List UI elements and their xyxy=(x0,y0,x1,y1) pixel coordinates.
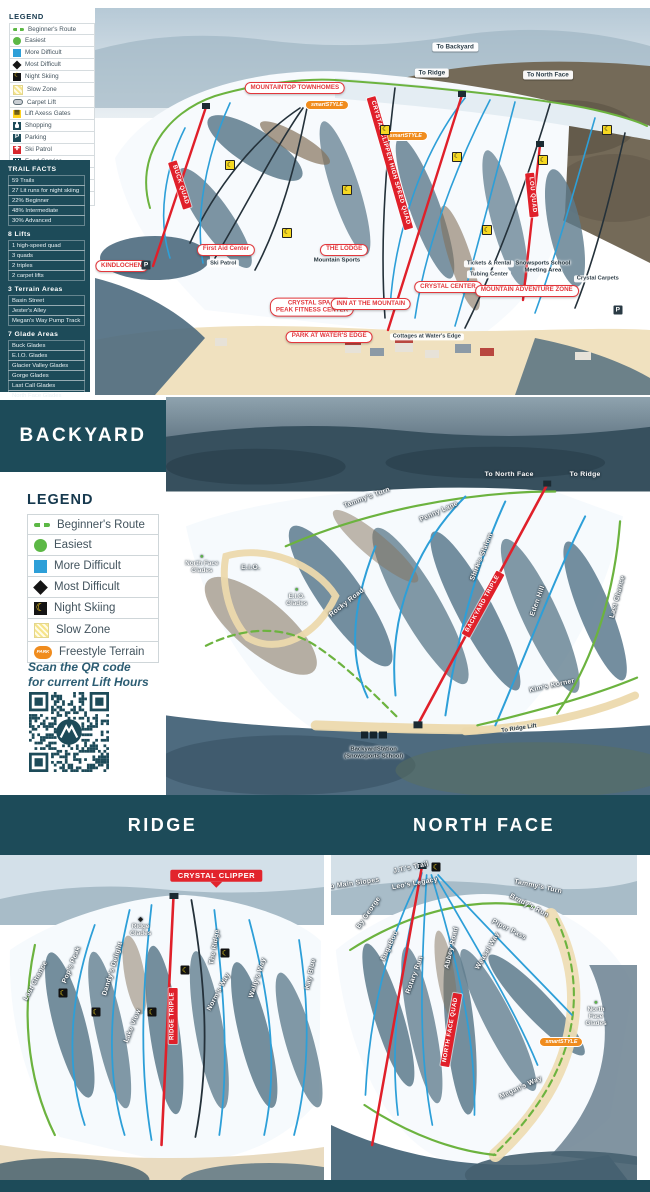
snowsports-school-meeting-area-label: Snowsports SchoolMeeting Area xyxy=(515,260,570,273)
qr-code-art xyxy=(29,692,109,772)
norm-s-way-label: Norm's Way xyxy=(206,972,232,1012)
main-trail-map: To BackyardTo RidgeTo North FaceMOUNTAIN… xyxy=(95,8,650,395)
most-difficult-icon xyxy=(12,60,21,69)
more-difficult-icon xyxy=(34,560,47,573)
shopping-icon xyxy=(13,122,21,130)
trail-map-poster: LEGEND Beginner's RouteEasiestMore Diffi… xyxy=(0,0,650,1192)
legend-item-label: Easiest xyxy=(54,539,92,551)
to-north-face-label: To North Face xyxy=(523,70,573,79)
most-difficult-icon xyxy=(33,580,48,595)
tubing-center-label: Tubing Center xyxy=(467,271,511,278)
inn-at-the-mountain-label: INN AT THE MOUNTAIN xyxy=(331,298,412,310)
tickets-rental-label: Tickets & Rental xyxy=(464,260,514,267)
night-skiing-icon: ☾ xyxy=(147,1008,156,1017)
section-band: RIDGE NORTH FACE xyxy=(0,795,650,855)
kay-blue-label: Kay Blue xyxy=(304,958,318,990)
mountain-adventure-zone-label: MOUNTAIN ADVENTURE ZONE xyxy=(475,285,579,297)
night-skiing-icon: ☾ xyxy=(34,602,47,615)
leo-s-legacy-label: Leo's Legacy xyxy=(392,876,439,892)
night-skiing-icon: ☾ xyxy=(380,125,390,135)
penny-lane-label: Penny Lane xyxy=(419,501,460,525)
legend-item-label: Most Difficult xyxy=(25,61,61,68)
last-chance-label: Last Chance xyxy=(22,960,49,1002)
by-george-label: By George xyxy=(355,896,383,931)
kindlochen-label: KINDLOCHEN xyxy=(95,260,148,272)
crystal-clipper-label: CRYSTAL CLIPPER xyxy=(171,870,262,883)
legend-item-label: Night Skiing xyxy=(25,73,59,80)
slow-zone-icon xyxy=(34,623,49,638)
legend-item-label: Shopping xyxy=(25,122,52,129)
j-t-s-trail-label: J.T.'s Trail xyxy=(393,861,430,876)
first-aid-center-label: First Aid Center xyxy=(197,244,255,256)
dandy-s-delight-label: Dandy's Delight xyxy=(101,941,125,996)
north-face-title: NORTH FACE xyxy=(331,795,637,855)
legend-item-label: Slow Zone xyxy=(56,624,110,636)
ridge-map: CRYSTAL CLIPPER◆RidgeGladesRIDGE TRIPLET… xyxy=(0,855,324,1192)
facts-item-2-carpet-lifts: 2 carpet lifts xyxy=(8,270,85,281)
crystal-center-label: CRYSTAL CENTER xyxy=(414,281,482,293)
legend-item-beginner-s-route: Beginner's Route xyxy=(28,515,158,535)
legend-item-night-skiing: ☾Night Skiing xyxy=(28,598,158,619)
qr-code xyxy=(29,692,109,772)
legend-item-label: More Difficult xyxy=(25,49,62,56)
north-face-quad-lift-label: NORTH FACE QUAD xyxy=(440,993,461,1067)
legend-item-slow-zone: Slow Zone xyxy=(28,619,158,642)
the-ridge-label: The Ridge xyxy=(209,929,223,965)
night-skiing-icon: ☾ xyxy=(13,73,21,81)
night-skiing-icon: ☾ xyxy=(538,155,548,165)
p-label: P xyxy=(142,260,151,269)
ski-patrol-icon: ✚ xyxy=(13,146,21,154)
backyardstation-snowsports-school-label: BackyardStation(Snowsports School) xyxy=(344,747,403,760)
crystal-spa-peak-fitness-center-label: CRYSTAL SPA &PEAK FITNESS CENTER xyxy=(270,298,354,317)
night-skiing-icon: ☾ xyxy=(91,1008,100,1017)
to-main-slopes-label: To Main Slopes xyxy=(331,876,380,891)
tammy-s-turn-label: Tammy's Turn xyxy=(343,486,391,510)
buck-quad-lift-label: BUCK QUAD xyxy=(168,160,191,209)
megan-s-way-label: Megan's Way xyxy=(499,1075,544,1101)
smartstyle-label: smartSTYLE xyxy=(305,100,349,110)
legend-item-label: Most Difficult xyxy=(54,581,120,593)
legend-item-label: Ski Patrol xyxy=(25,146,52,153)
train-icon xyxy=(361,732,387,739)
backyard-legend-title: LEGEND xyxy=(27,492,159,508)
main-legend-title: LEGEND xyxy=(9,12,95,21)
beginner-route-icon xyxy=(13,28,24,31)
to-north-face-label: To North Face xyxy=(485,471,534,479)
ridge-triple-lift-label: RIDGE TRIPLE xyxy=(169,988,178,1044)
legend-item-more-difficult: More Difficult xyxy=(28,556,158,577)
crystal-carpets-label: Crystal Carpets xyxy=(574,275,622,282)
night-skiing-icon: ☾ xyxy=(602,125,612,135)
ski-patrol-label: Ski Patrol xyxy=(207,260,239,267)
p-label: P xyxy=(613,305,622,314)
night-skiing-icon: ☾ xyxy=(342,185,352,195)
facts-section-title: 3 Terrain Areas xyxy=(8,286,85,293)
qr-caption: Scan the QR code for current Lift Hours xyxy=(28,660,168,690)
night-skiing-icon: ☾ xyxy=(432,863,441,872)
to-ridge-lift-label: To Ridge Lift xyxy=(501,723,537,734)
smartstyle-label: smartSTYLE xyxy=(384,131,428,141)
backyard-legend-list: Beginner's RouteEasiestMore DifficultMos… xyxy=(27,514,159,663)
crystal-clipper-high-speed-quad-lift-label: CRYSTAL CLIPPER HIGH SPEED QUAD xyxy=(367,96,413,230)
mountain-sports-label: Mountain Sports xyxy=(314,258,360,265)
freestyle-terrain-icon: PARK xyxy=(34,646,52,659)
legend-item-label: Parking xyxy=(25,134,46,141)
beginner-route-icon xyxy=(34,523,50,527)
legend-item-label: Beginner's Route xyxy=(57,519,145,531)
facts-section-title: TRAIL FACTS xyxy=(8,166,85,173)
e-i-o-label: E.I.O. xyxy=(241,564,260,572)
legend-item-label: Night Skiing xyxy=(54,602,115,614)
facts-item-30-advanced: 30% Advanced xyxy=(8,215,85,226)
facts-section-title: 8 Lifts xyxy=(8,231,85,238)
ridge-title: RIDGE xyxy=(0,795,325,855)
easiest-icon: ● xyxy=(295,587,299,593)
night-skiing-icon: ☾ xyxy=(181,965,190,974)
backyard-triple-lift-label: BACKYARD TRIPLE xyxy=(461,570,504,637)
legend-item-label: Slow Zone xyxy=(27,86,57,93)
legend-item-easiest: Easiest xyxy=(28,535,158,556)
night-skiing-icon: ☾ xyxy=(282,228,292,238)
tammy-s-turn-label: Tammy's Turn xyxy=(514,878,563,896)
legend-item-label: Carpet Lift xyxy=(27,99,56,106)
north-face-glades-label: ●North FaceGlades xyxy=(185,554,218,574)
abbey-road-label: Abbey Road xyxy=(443,926,460,969)
qr-caption-line1: Scan the QR code xyxy=(28,660,131,674)
e-i-o-glades-label: ●E.I.O.Glades xyxy=(286,587,307,607)
backyard-header: BACKYARD xyxy=(0,400,166,472)
backyard-map: To North FaceTo RidgeTammy's TurnPenny L… xyxy=(166,397,650,795)
legend-item-label: Lift Axess Gates xyxy=(25,110,71,117)
bugaboo-label: BugaBoo xyxy=(380,930,401,963)
backyard-title: BACKYARD xyxy=(20,425,147,447)
legend-item-label: Easiest xyxy=(25,37,46,44)
legend-item-slow-zone: Slow Zone xyxy=(9,82,95,97)
legend-item-label: More Difficult xyxy=(54,560,121,572)
brady-s-run-label: Brady's Run xyxy=(508,892,550,919)
night-skiing-icon: ☾ xyxy=(225,160,235,170)
wally-s-way-label: Wally's Way xyxy=(248,957,268,999)
more-difficult-icon xyxy=(13,49,21,57)
eden-hill-label: Eden Hill xyxy=(529,585,547,617)
shirk-s-slalom-label: Shirk's Slalom xyxy=(469,532,495,582)
night-skiing-icon: ☾ xyxy=(452,152,462,162)
lake-view-label: Lake View xyxy=(123,1008,143,1044)
to-ridge-label: To Ridge xyxy=(570,471,601,479)
rocky-road-label: Rocky Road xyxy=(328,587,366,619)
north-face-map: J.T.'s Trail☾To Main SlopesLeo's LegacyT… xyxy=(331,855,637,1192)
smartstyle-label: smartSTYLE xyxy=(539,1037,583,1047)
easiest-icon: ● xyxy=(200,554,204,560)
north-face-glades-label: ●NorthFaceGlades xyxy=(585,1000,606,1028)
parking-icon: P xyxy=(13,134,21,142)
night-skiing-icon: ☾ xyxy=(221,949,230,958)
lou-quad-lift-label: LOU QUAD xyxy=(525,173,538,218)
to-backyard-label: To Backyard xyxy=(433,43,478,52)
kim-s-korner-label: Kim's Korner xyxy=(529,677,576,694)
night-skiing-icon: ☾ xyxy=(482,225,492,235)
ridge-glades-label: ◆RidgeGlades xyxy=(130,917,151,937)
facts-item-megan-s-way-pump-track: Megan's Way Pump Track xyxy=(8,315,85,326)
park-at-water-s-edge-label: PARK AT WATER'S EDGE xyxy=(286,331,373,343)
easiest-icon xyxy=(34,539,47,552)
rotary-run-label: Rotary Run xyxy=(405,955,426,995)
pop-s-peak-label: Pop's Peak xyxy=(61,945,83,984)
slow-zone-icon xyxy=(13,85,23,95)
the-lodge-label: THE LODGE xyxy=(320,244,368,256)
night-skiing-icon: ☾ xyxy=(58,988,67,997)
last-chance-label: Last Chance xyxy=(609,575,628,619)
easiest-icon xyxy=(13,37,21,45)
qr-caption-line2: for current Lift Hours xyxy=(28,675,149,689)
facts-section-title: 7 Glade Areas xyxy=(8,331,85,338)
legend-item-label: Freestyle Terrain xyxy=(59,646,144,658)
cottages-at-water-s-edge-label: Cottages at Water's Edge xyxy=(390,333,464,340)
footer-band xyxy=(0,1180,650,1192)
mountaintop-townhomes-label: MOUNTAINTOP TOWNHOMES xyxy=(245,82,346,94)
to-ridge-label: To Ridge xyxy=(415,68,449,77)
legend-item-label: Beginner's Route xyxy=(28,26,76,33)
legend-item-most-difficult: Most Difficult xyxy=(28,577,158,598)
legend-item-freestyle-terrain: PARKFreestyle Terrain xyxy=(28,642,158,662)
piper-pass-label: Piper Pass xyxy=(490,918,527,942)
trail-facts-panel: TRAIL FACTS59 Trails27 Lit runs for nigh… xyxy=(0,160,90,392)
lift-axess-gates-icon: ▦ xyxy=(13,110,21,118)
carpet-lift-icon xyxy=(13,99,23,105)
backyard-legend: LEGEND Beginner's RouteEasiestMore Diffi… xyxy=(27,492,159,663)
easiest-icon: ● xyxy=(594,1000,598,1006)
weasel-way-label: Weasel Way xyxy=(474,931,502,971)
most-difficult-icon: ◆ xyxy=(138,917,143,923)
